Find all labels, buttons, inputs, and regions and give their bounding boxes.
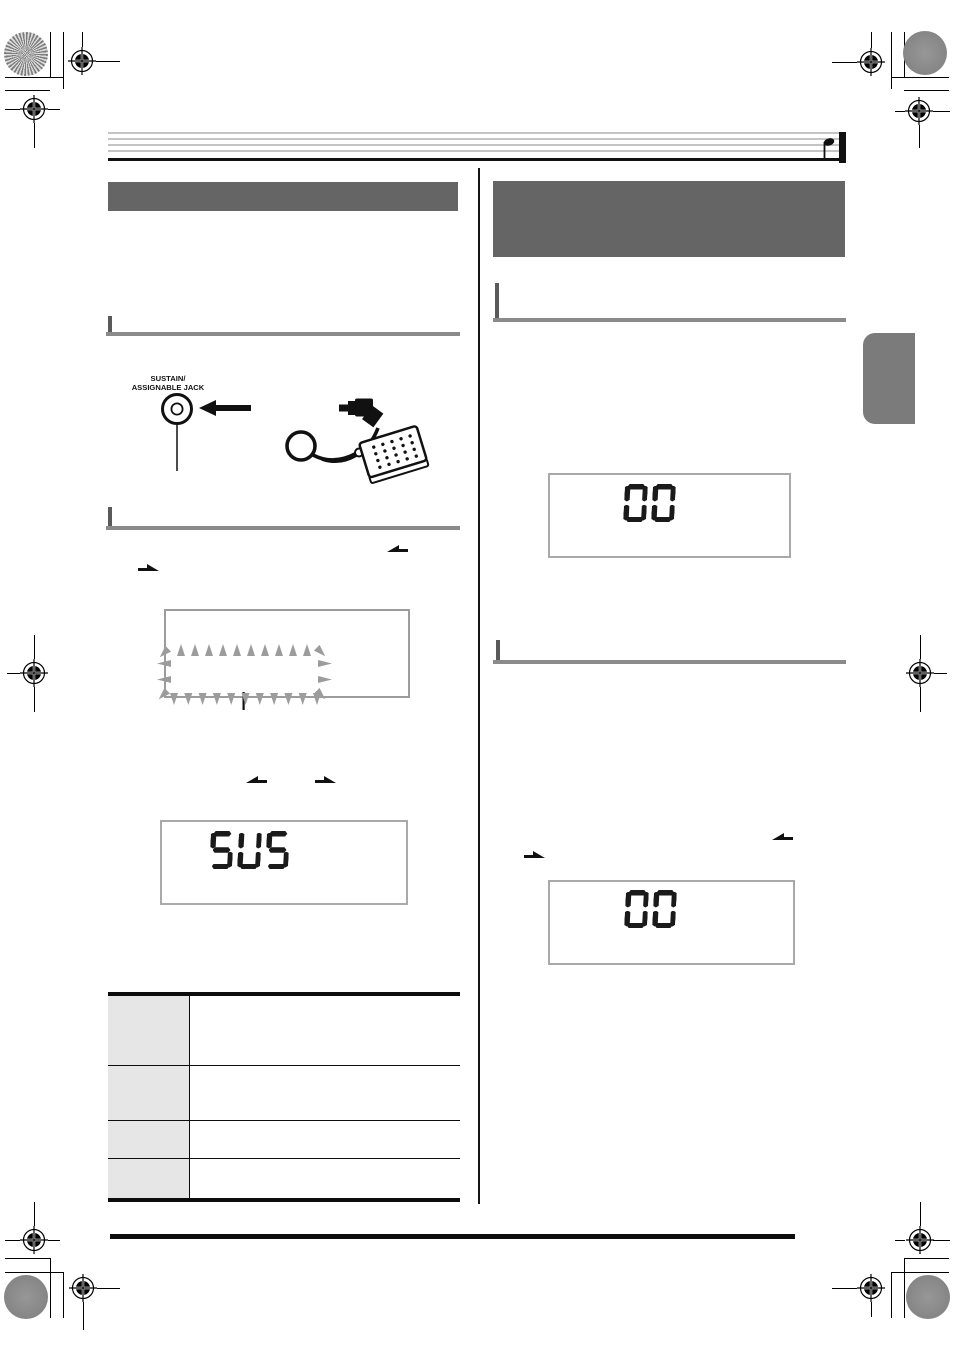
crop-mark-line xyxy=(5,77,63,78)
table-row xyxy=(108,1159,460,1198)
crop-mark-line xyxy=(920,635,921,659)
flashing-arrow-icon xyxy=(170,693,178,705)
column-divider xyxy=(478,168,480,1204)
table-row xyxy=(108,1121,460,1159)
gray-dot-target-icon xyxy=(906,1275,950,1319)
crop-mark-line xyxy=(5,109,20,110)
color-registration-target-icon xyxy=(4,32,48,76)
section-rule xyxy=(493,318,846,322)
table-value-cell xyxy=(190,1066,460,1120)
left-section-title-bar xyxy=(108,182,458,211)
settings-table xyxy=(108,992,460,1202)
registration-mark-icon xyxy=(68,1273,98,1303)
flashing-arrow-icon xyxy=(199,693,207,705)
registration-mark-icon xyxy=(856,1273,886,1303)
crop-mark-line xyxy=(895,1240,905,1241)
flashing-arrow-icon xyxy=(213,693,221,705)
lcd-text xyxy=(209,831,290,869)
flashing-arrow-icon xyxy=(184,693,192,705)
flashing-arrow-icon xyxy=(256,693,264,705)
crop-mark-line xyxy=(34,635,35,659)
page-header-staff xyxy=(108,131,846,165)
registration-mark-icon xyxy=(67,46,97,76)
crop-mark-line xyxy=(832,62,857,63)
lcd-char xyxy=(209,831,234,869)
crop-mark-line xyxy=(895,111,905,112)
crop-mark-line xyxy=(920,687,921,712)
sustain-pedal-diagram: SUSTAIN/ ASSIGNABLE JACK xyxy=(120,362,450,492)
note-icon xyxy=(823,137,835,160)
lcd-display-sus xyxy=(160,820,408,905)
crop-mark-line xyxy=(63,1272,64,1318)
jack-label-line2: ASSIGNABLE JACK xyxy=(132,383,205,392)
crop-mark-line xyxy=(934,673,947,674)
lcd-text xyxy=(624,890,677,928)
crop-mark-line xyxy=(871,1302,872,1317)
chapter-tab xyxy=(863,333,915,424)
crop-mark-line xyxy=(96,61,120,62)
crop-mark-line xyxy=(34,687,35,712)
pedal-plug-icon xyxy=(339,399,383,428)
left-arrow-icon xyxy=(387,543,408,553)
flashing-arrow-icon xyxy=(284,693,292,705)
crop-mark-line xyxy=(48,109,60,110)
lcd-display-value-bottom xyxy=(548,880,795,965)
crop-mark-line xyxy=(891,32,892,89)
table-header-cell xyxy=(108,1159,190,1198)
jack-icon xyxy=(163,395,192,424)
table-value-cell xyxy=(190,996,460,1065)
section-rule xyxy=(493,660,846,664)
crop-mark-line xyxy=(50,32,51,77)
crop-mark-line xyxy=(933,111,950,112)
crop-mark-line xyxy=(832,1288,857,1289)
crop-mark-line xyxy=(63,32,64,89)
table-value-cell xyxy=(190,1121,460,1158)
table-value-cell xyxy=(190,1159,460,1198)
table-header-cell xyxy=(108,996,190,1065)
footer-rule xyxy=(110,1234,795,1239)
section-rule xyxy=(495,283,499,322)
lcd-text xyxy=(623,484,676,522)
section-rule xyxy=(106,526,460,530)
right-section-title-bar xyxy=(493,181,845,257)
flashing-arrow-icon xyxy=(270,693,278,705)
crop-mark-line xyxy=(933,1240,950,1241)
crop-mark-line xyxy=(50,1258,51,1318)
crop-mark-line xyxy=(891,1272,949,1273)
crop-mark-line xyxy=(904,90,949,91)
gray-dot-target-icon xyxy=(4,1275,48,1319)
crop-mark-line xyxy=(5,1240,20,1241)
registration-mark-icon xyxy=(19,1225,49,1255)
crop-mark-line xyxy=(904,1258,949,1259)
registration-mark-icon xyxy=(19,658,49,688)
crop-mark-line xyxy=(7,673,20,674)
lcd-char xyxy=(623,484,648,522)
registration-mark-icon xyxy=(904,96,934,126)
lcd-char xyxy=(265,831,290,869)
section-rule xyxy=(106,332,460,336)
right-arrow-icon xyxy=(524,849,545,859)
crop-mark-line xyxy=(82,32,83,47)
crop-mark-line xyxy=(97,1288,120,1289)
crop-mark-line xyxy=(34,1202,35,1226)
lcd-display-flashing xyxy=(150,600,430,715)
crop-mark-line xyxy=(891,77,949,78)
staff-end-bar xyxy=(839,132,846,163)
table-header-cell xyxy=(108,1066,190,1120)
insert-arrow-icon xyxy=(199,400,251,416)
crop-mark-line xyxy=(83,1302,84,1330)
jack-label-line1: SUSTAIN/ xyxy=(151,374,187,383)
crop-mark-line xyxy=(904,1258,905,1318)
table-row xyxy=(108,996,460,1066)
table-row xyxy=(108,1066,460,1121)
flashing-arrow-icon xyxy=(227,693,235,705)
crop-mark-line xyxy=(5,1272,63,1273)
right-arrow-icon xyxy=(138,562,159,572)
right-arrow-icon xyxy=(315,774,336,784)
left-arrow-icon xyxy=(246,774,267,784)
table-header-cell xyxy=(108,1121,190,1158)
crop-mark-line xyxy=(919,125,920,148)
gray-dot-target-icon xyxy=(903,31,947,75)
registration-mark-icon xyxy=(905,1225,935,1255)
lcd-char xyxy=(237,831,262,869)
flashing-arrow-icon xyxy=(299,693,307,705)
manual-page: SUSTAIN/ ASSIGNABLE JACK xyxy=(0,0,954,1350)
crop-mark-line xyxy=(48,1240,60,1241)
registration-mark-icon xyxy=(856,47,886,77)
crop-mark-line xyxy=(891,1272,892,1318)
crop-mark-line xyxy=(920,1202,921,1226)
crop-mark-line xyxy=(871,32,872,48)
crop-mark-line xyxy=(5,90,50,91)
lcd-char xyxy=(652,890,677,928)
lcd-char xyxy=(624,890,649,928)
registration-mark-icon xyxy=(905,658,935,688)
lcd-display-value-top xyxy=(548,473,791,558)
crop-mark-line xyxy=(5,1258,50,1259)
pedal-icon xyxy=(355,426,429,484)
lcd-char xyxy=(651,484,676,522)
crop-mark-line xyxy=(34,123,35,148)
left-arrow-icon xyxy=(772,831,793,841)
registration-mark-icon xyxy=(19,94,49,124)
